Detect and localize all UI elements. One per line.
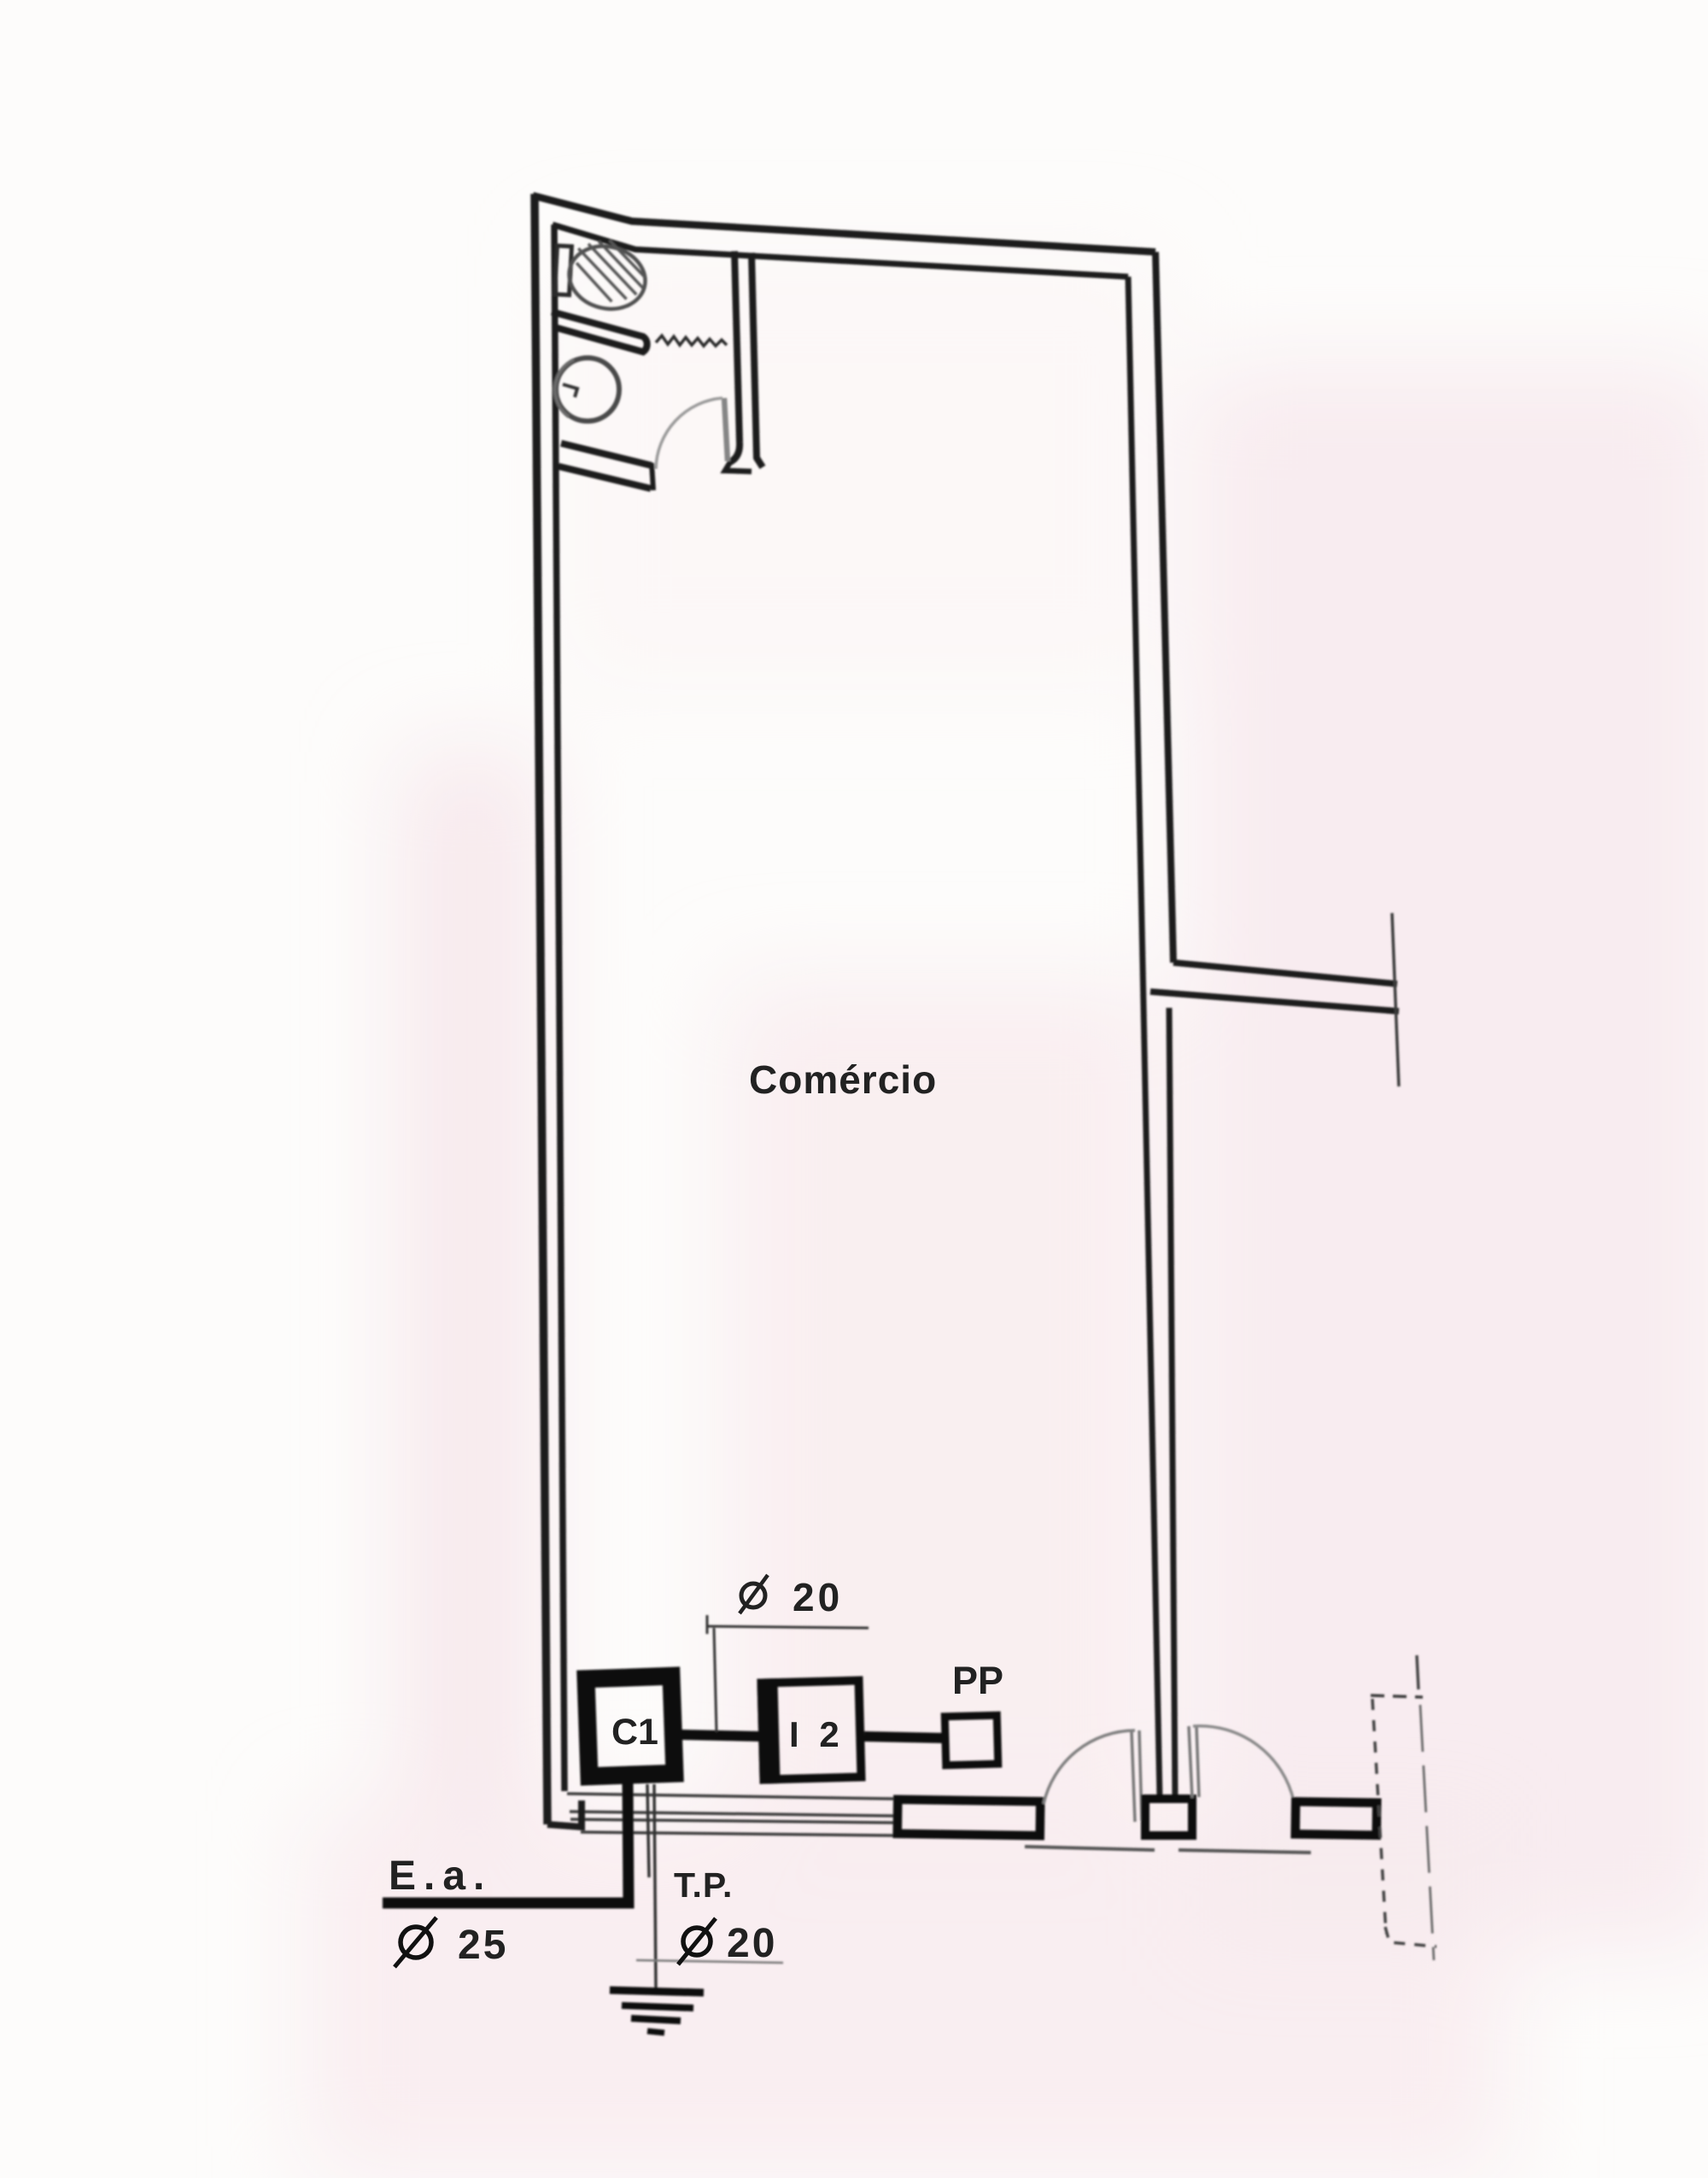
svg-text:PP: PP <box>952 1659 1003 1702</box>
svg-text:I 2: I 2 <box>789 1714 845 1754</box>
svg-text:20: 20 <box>727 1921 777 1966</box>
svg-text:20: 20 <box>793 1575 843 1619</box>
svg-text:Comércio: Comércio <box>749 1057 937 1102</box>
svg-text:T.P.: T.P. <box>674 1865 733 1905</box>
svg-text:E.a.: E.a. <box>389 1853 492 1899</box>
svg-text:25: 25 <box>458 1923 508 1968</box>
svg-text:C1: C1 <box>611 1712 658 1753</box>
